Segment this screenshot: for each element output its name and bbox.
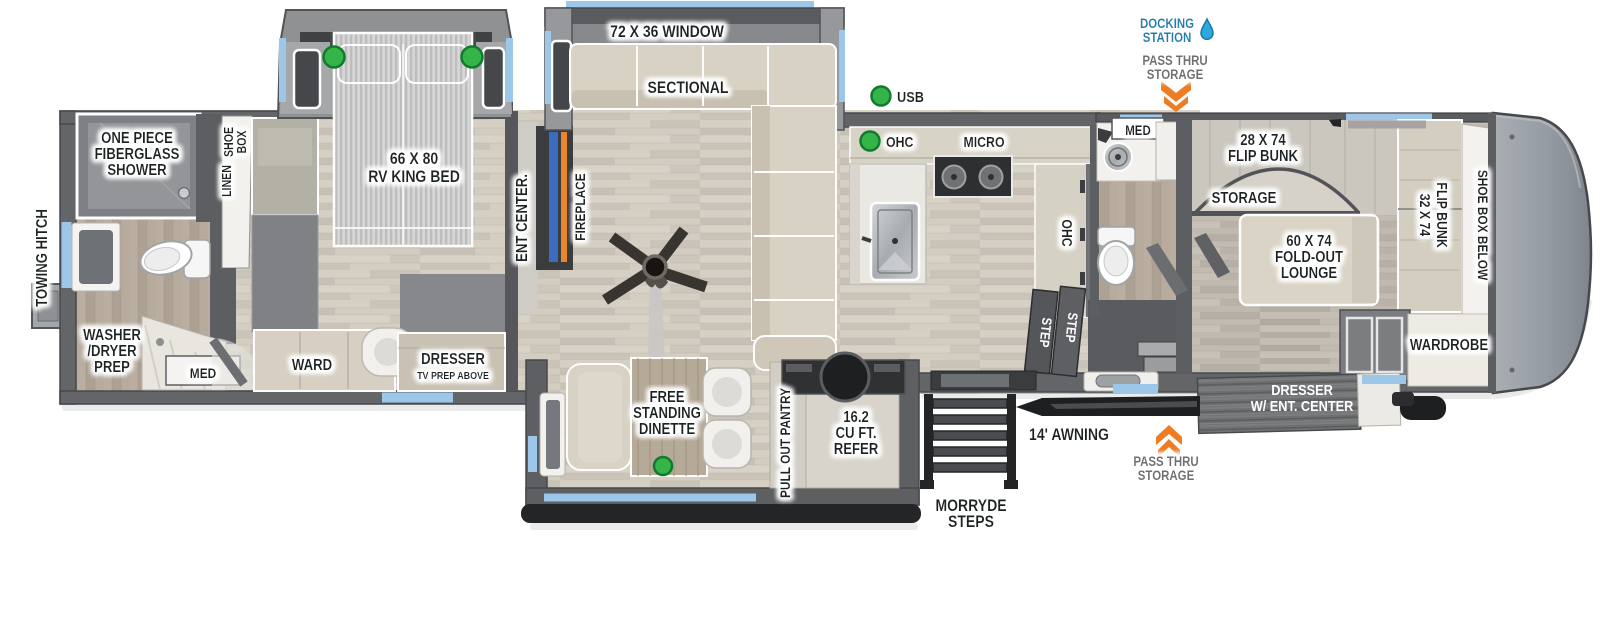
svg-text:FLIP BUNK: FLIP BUNK [1434,182,1450,248]
svg-text:OHC: OHC [886,134,914,150]
svg-text:STORAGE: STORAGE [1138,468,1194,483]
svg-text:ENT CENTER.: ENT CENTER. [514,174,531,262]
svg-text:CU FT.: CU FT. [836,425,877,442]
svg-text:DINETTE: DINETTE [639,421,696,438]
svg-text:USB: USB [897,88,924,105]
svg-text:OHC: OHC [1059,219,1075,247]
svg-text:BOX: BOX [235,130,249,153]
svg-text:/DRYER: /DRYER [87,343,137,360]
svg-text:FIBERGLASS: FIBERGLASS [95,146,180,163]
svg-text:LOUNGE: LOUNGE [1281,265,1338,282]
svg-text:WARD: WARD [292,357,332,374]
svg-text:72 X 36 WINDOW: 72 X 36 WINDOW [610,23,724,41]
svg-text:DOCKING: DOCKING [1140,16,1194,31]
svg-text:TV PREP ABOVE: TV PREP ABOVE [417,370,489,382]
svg-text:PASS THRU: PASS THRU [1142,53,1207,68]
svg-text:MICRO: MICRO [963,134,1004,150]
svg-text:TOWING HITCH: TOWING HITCH [34,209,51,307]
svg-text:STANDING: STANDING [633,405,701,422]
svg-text:PREP: PREP [94,359,130,376]
svg-text:60 X 74: 60 X 74 [1286,233,1331,250]
svg-text:SECTIONAL: SECTIONAL [648,79,729,97]
svg-text:SHOE BOX BELOW: SHOE BOX BELOW [1475,170,1491,281]
svg-text:RV KING BED: RV KING BED [368,168,460,186]
svg-text:PULL OUT PANTRY: PULL OUT PANTRY [777,388,793,498]
svg-text:STEPS: STEPS [948,513,994,531]
svg-text:14' AWNING: 14' AWNING [1029,426,1109,444]
svg-text:32 X 74: 32 X 74 [1417,194,1433,237]
svg-text:SHOE: SHOE [222,127,236,157]
svg-text:FLIP BUNK: FLIP BUNK [1228,148,1299,165]
svg-text:ONE PIECE: ONE PIECE [101,130,173,147]
svg-text:STORAGE: STORAGE [1147,67,1203,82]
svg-text:LINEN: LINEN [220,165,234,197]
svg-text:W/ ENT. CENTER: W/ ENT. CENTER [1251,397,1354,414]
svg-text:STEP: STEP [1062,312,1080,343]
svg-text:16.2: 16.2 [843,409,869,426]
svg-text:WARDROBE: WARDROBE [1410,337,1489,354]
svg-text:WASHER: WASHER [83,327,141,344]
svg-text:SHOWER: SHOWER [107,162,167,179]
svg-text:PASS THRU: PASS THRU [1133,454,1198,469]
svg-text:66 X 80: 66 X 80 [390,150,438,168]
svg-text:REFER: REFER [834,441,879,458]
svg-text:DRESSER: DRESSER [421,351,485,368]
svg-text:FREE: FREE [649,389,684,406]
svg-text:MED: MED [190,365,216,381]
svg-text:MED: MED [1125,123,1150,138]
svg-text:STORAGE: STORAGE [1212,190,1277,207]
svg-text:28 X 74: 28 X 74 [1240,132,1285,149]
svg-text:FOLD-OUT: FOLD-OUT [1275,249,1343,266]
svg-text:DRESSER: DRESSER [1271,381,1333,398]
svg-text:STEP: STEP [1036,317,1054,348]
svg-text:FIREPLACE: FIREPLACE [572,173,588,241]
svg-text:STATION: STATION [1143,30,1192,45]
